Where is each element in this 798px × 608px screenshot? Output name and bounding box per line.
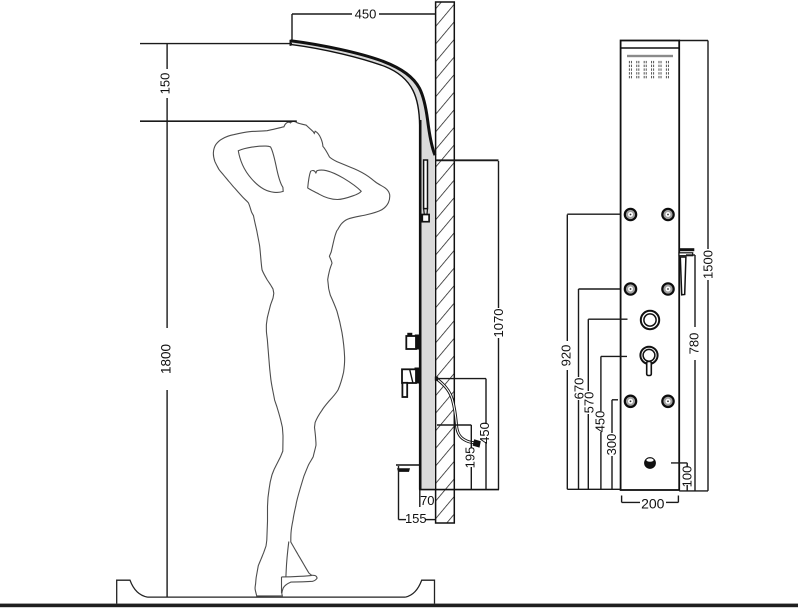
svg-text:450: 450 (593, 411, 608, 433)
svg-text:780: 780 (687, 333, 702, 355)
svg-text:195: 195 (463, 447, 478, 469)
svg-text:450: 450 (355, 7, 377, 22)
svg-text:200: 200 (641, 496, 665, 512)
svg-text:70: 70 (420, 493, 434, 508)
svg-text:300: 300 (604, 434, 619, 456)
svg-text:1070: 1070 (491, 309, 506, 338)
svg-text:1500: 1500 (701, 250, 716, 279)
svg-text:155: 155 (405, 511, 427, 526)
svg-text:1800: 1800 (159, 344, 174, 374)
svg-text:570: 570 (581, 392, 596, 414)
svg-text:100: 100 (679, 466, 694, 488)
svg-text:450: 450 (477, 422, 492, 444)
svg-text:150: 150 (158, 73, 173, 95)
svg-text:920: 920 (558, 345, 573, 367)
